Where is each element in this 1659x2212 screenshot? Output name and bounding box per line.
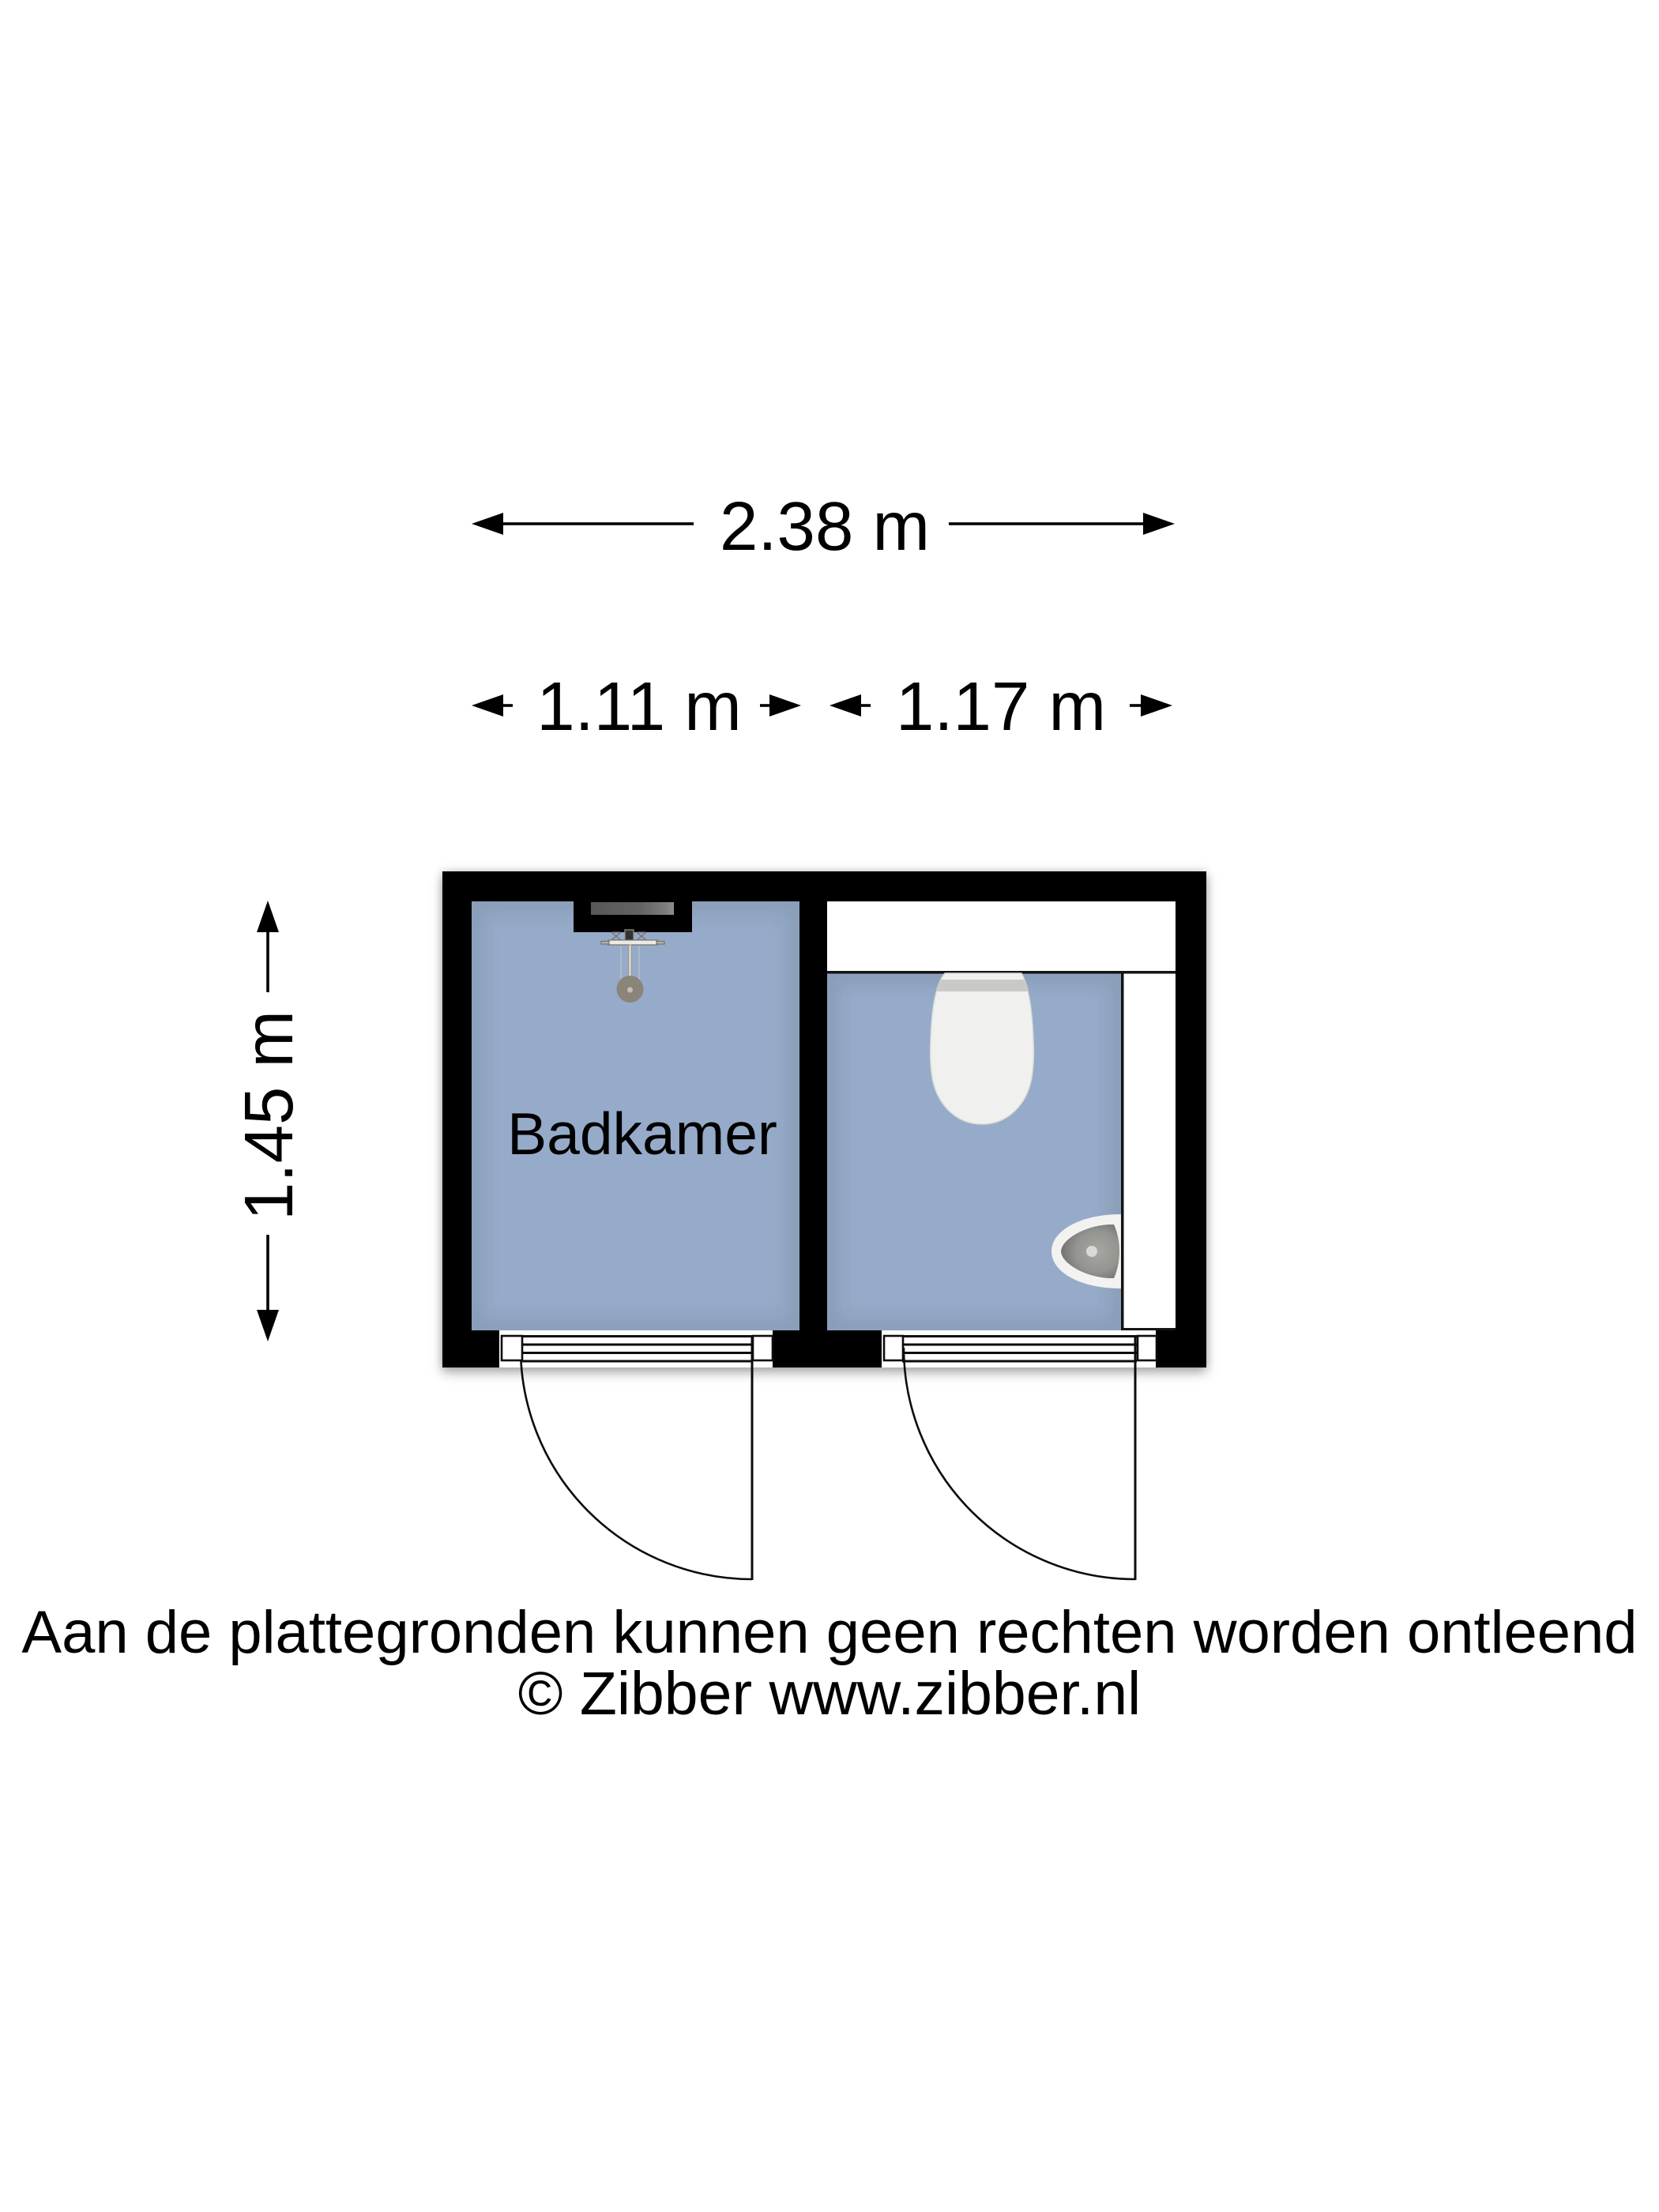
svg-text:1.45 m: 1.45 m xyxy=(231,1010,307,1221)
svg-text:1.11 m: 1.11 m xyxy=(536,668,742,745)
svg-text:Badkamer: Badkamer xyxy=(507,1100,777,1167)
svg-text:2.38 m: 2.38 m xyxy=(720,488,930,565)
svg-text:1.17 m: 1.17 m xyxy=(896,668,1106,745)
svg-text:© Zibber www.zibber.nl: © Zibber www.zibber.nl xyxy=(518,1660,1142,1728)
svg-text:Aan de plattegronden kunnen ge: Aan de plattegronden kunnen geen rechten… xyxy=(21,1599,1637,1666)
